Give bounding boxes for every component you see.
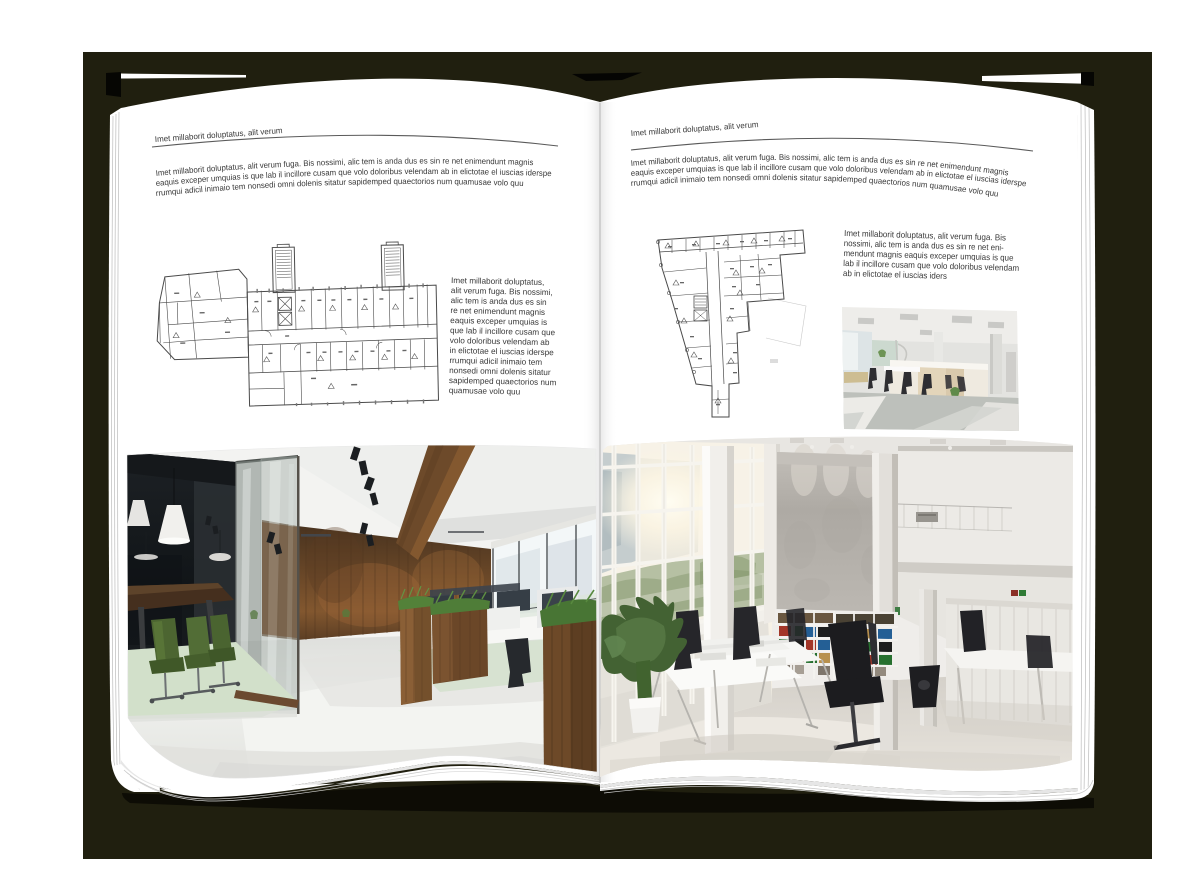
svg-text:quamusae volo quu: quamusae volo quu	[449, 386, 521, 397]
